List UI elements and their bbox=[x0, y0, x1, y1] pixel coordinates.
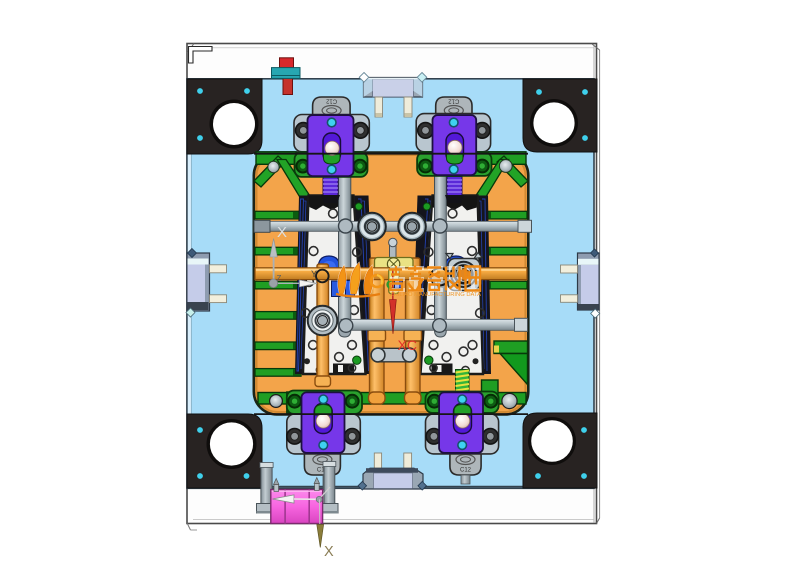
svg-text:C12: C12 bbox=[448, 98, 460, 104]
svg-text:X: X bbox=[277, 224, 287, 241]
svg-text:XC: XC bbox=[398, 337, 417, 353]
svg-text:Y: Y bbox=[311, 269, 317, 279]
svg-text:Z: Z bbox=[277, 274, 282, 283]
svg-text:ZHILIAO MANUFACTURING DATA: ZHILIAO MANUFACTURING DATA bbox=[390, 292, 481, 298]
svg-text:X: X bbox=[324, 544, 334, 560]
svg-text:C12: C12 bbox=[460, 468, 472, 474]
svg-text:C12: C12 bbox=[325, 98, 337, 104]
